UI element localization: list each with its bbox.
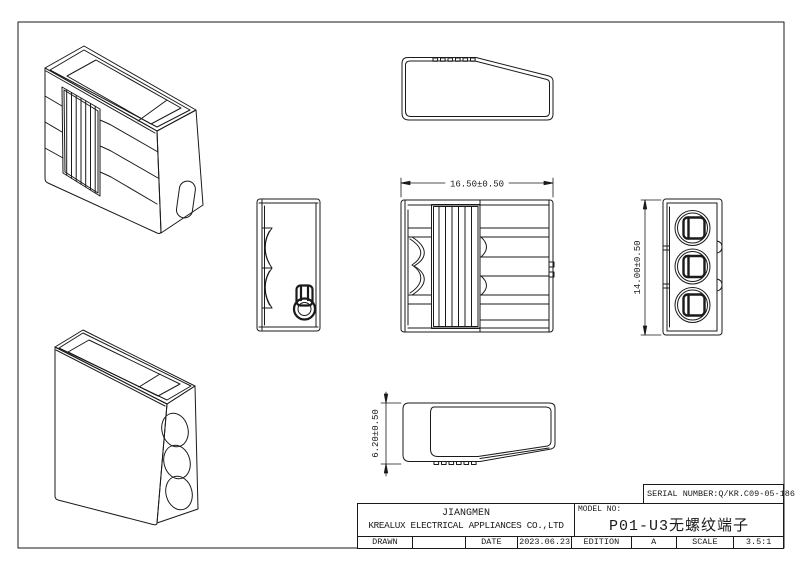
field-date-value: 2023.06.23 bbox=[518, 537, 572, 548]
field-edition-value: A bbox=[632, 537, 677, 548]
drawing-views: 16.50±0.50 14.00±0.50 6.20±0.50 bbox=[0, 0, 800, 565]
field-drawn-value bbox=[413, 537, 466, 548]
title-block-fields: DRAWN DATE 2023.06.23 EDITION A SCALE 3.… bbox=[357, 536, 784, 549]
dim-depth-text: 6.20±0.50 bbox=[371, 409, 381, 458]
iso-view-back-bottom bbox=[55, 330, 198, 525]
field-scale-value: 3.5:1 bbox=[734, 537, 783, 548]
field-scale-label: SCALE bbox=[677, 537, 735, 548]
front-view bbox=[401, 200, 554, 332]
field-date-label: DATE bbox=[466, 537, 519, 548]
model-name: P01-U3无螺纹端子 bbox=[575, 514, 783, 535]
side-view bbox=[257, 199, 320, 331]
bottom-view bbox=[403, 403, 555, 465]
iso-view-front-top bbox=[45, 46, 203, 233]
drawing-sheet: 16.50±0.50 14.00±0.50 6.20±0.50 SERIAL N… bbox=[0, 0, 800, 565]
field-drawn-label: DRAWN bbox=[358, 537, 413, 548]
company-cell: JIANGMEN KREALUX ELECTRICAL APPLIANCES C… bbox=[358, 504, 575, 536]
dim-height-text: 14.00±0.50 bbox=[633, 240, 643, 294]
end-view bbox=[663, 199, 722, 335]
company-name: KREALUX ELECTRICAL APPLIANCES CO.,LTD bbox=[358, 520, 574, 532]
company-city: JIANGMEN bbox=[358, 508, 574, 520]
dimension-height: 14.00±0.50 bbox=[633, 200, 661, 335]
title-block: JIANGMEN KREALUX ELECTRICAL APPLIANCES C… bbox=[357, 503, 784, 537]
dim-width-text: 16.50±0.50 bbox=[450, 180, 504, 190]
end-view-ports bbox=[675, 211, 710, 323]
model-cell: MODEL NO: P01-U3无螺纹端子 bbox=[575, 504, 783, 536]
top-view bbox=[402, 58, 553, 121]
serial-number: SERIAL NUMBER:Q/KR.C09-05-186 bbox=[643, 484, 784, 504]
model-no-label: MODEL NO: bbox=[578, 505, 621, 514]
field-edition-label: EDITION bbox=[572, 537, 632, 548]
dimension-depth: 6.20±0.50 bbox=[371, 392, 401, 476]
dimension-width: 16.50±0.50 bbox=[401, 178, 553, 197]
